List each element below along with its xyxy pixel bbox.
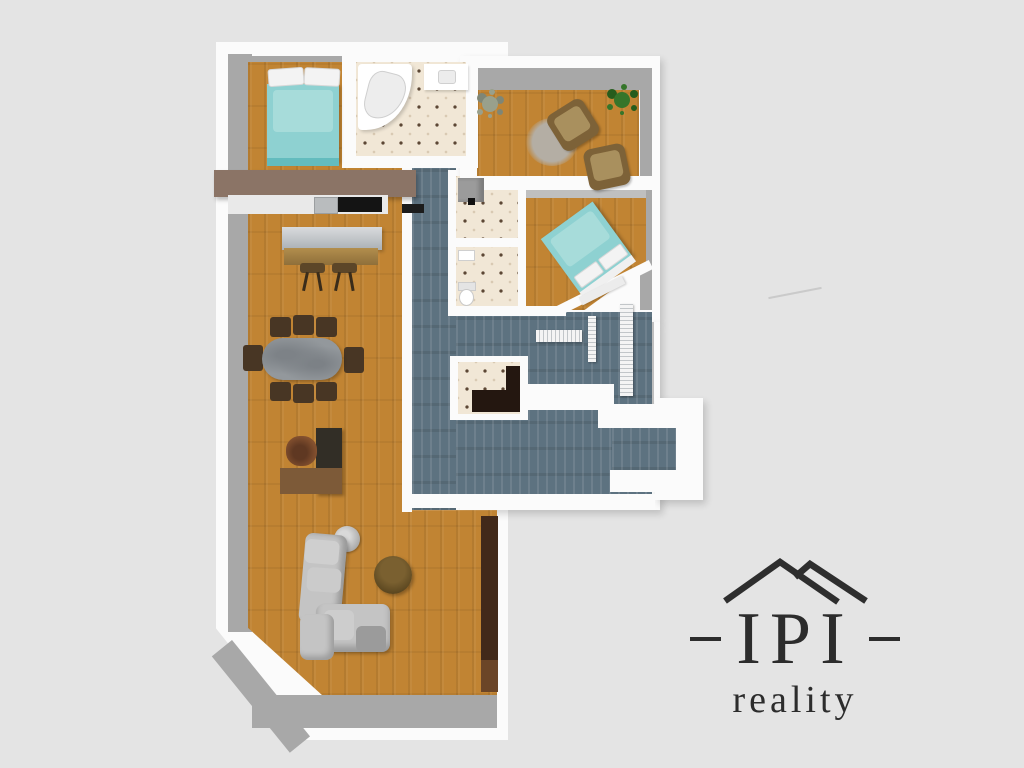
vanity-basin: [438, 70, 456, 84]
wall-smallrooms-right: [518, 188, 526, 312]
office-chair: [286, 436, 317, 466]
floor-entry-corridor: [612, 428, 676, 470]
dining-chair: [316, 317, 337, 337]
bed-footboard: [267, 158, 339, 166]
dining-chair: [316, 382, 337, 401]
brand-logo: IPI reality: [690, 556, 900, 722]
wc-toilet-bowl: [459, 289, 474, 306]
dining-chair: [293, 315, 314, 335]
wall-entry-bottom: [610, 470, 700, 492]
palm-plant: [614, 92, 630, 108]
desk-main: [280, 468, 342, 494]
bed-duvet: [273, 90, 333, 132]
brand-name: IPI: [736, 602, 853, 676]
brand-tagline: reality: [690, 678, 900, 722]
wall-unit-tall: [481, 516, 498, 662]
logo-dash-left: [690, 637, 721, 641]
bed-pillow: [304, 67, 341, 87]
bar-stool: [332, 263, 357, 273]
wc-hand-basin: [458, 250, 475, 261]
wall-face-top-sitting-room: [474, 68, 642, 90]
armchair-cushion: [552, 104, 592, 143]
dining-chair: [293, 384, 314, 403]
kitchen-counter-end: [402, 204, 424, 213]
kitchen-island-top: [282, 227, 382, 250]
armchair: [582, 142, 632, 192]
sofa-back-cushion: [304, 539, 340, 566]
dining-chair: [344, 347, 364, 373]
dining-table: [262, 338, 342, 380]
wall-face-bedroom2-top: [518, 190, 646, 198]
kitchen-sink: [314, 197, 338, 214]
kitchen-island-base: [284, 248, 378, 265]
armchair-cushion: [589, 149, 624, 182]
wall-hall-bottom: [405, 494, 655, 508]
dining-chair: [270, 382, 291, 401]
gray-plant: [482, 96, 498, 112]
bed-pillow: [267, 67, 304, 87]
wall-unit-low: [481, 660, 498, 692]
kitchen-upper-cabinets: [214, 170, 416, 197]
radiator-vertical-small: [588, 316, 596, 362]
floor-plan-render: IPI reality: [0, 0, 1024, 768]
logo-dash-right: [869, 637, 900, 641]
bed-bedroom1: [264, 66, 342, 168]
sofa-back-cushion: [306, 567, 342, 593]
radiator-vertical-tall: [620, 304, 633, 396]
brand-name-row: IPI: [690, 602, 900, 676]
dining-chair: [270, 317, 291, 337]
dining-chair: [243, 345, 263, 371]
vanity-sink: [424, 64, 468, 90]
scratch-line: [768, 287, 821, 299]
pantry-counter-front: [472, 390, 520, 412]
wall-pantry-left: [450, 358, 458, 418]
sofa-chaise: [300, 614, 334, 660]
wall-entry-top: [598, 404, 700, 428]
bar-stool: [300, 263, 325, 273]
wall-pantry-top: [450, 356, 528, 362]
utility-appliance: [468, 198, 475, 205]
radiator-horizontal: [536, 330, 582, 342]
coffee-table: [374, 556, 412, 594]
kitchen-cooktop: [338, 197, 382, 212]
wall-wc-bottom: [452, 306, 566, 316]
wall-bathroom-left: [342, 56, 356, 168]
wall-utility-wc: [452, 238, 522, 247]
sofa-armrest: [356, 626, 386, 652]
wall-pantry-bottom: [450, 414, 528, 420]
